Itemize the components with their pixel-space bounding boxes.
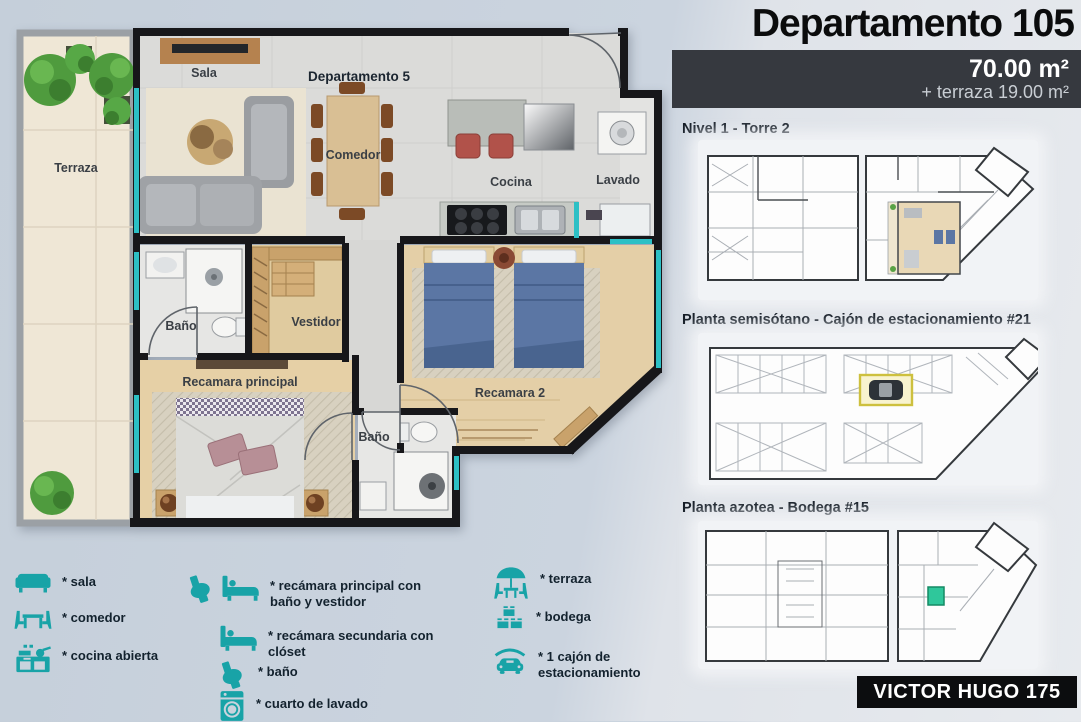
floorplan-svg: Terraza Sala Departamento 5 Comedor Coci… [13, 26, 663, 528]
main-floorplan: Terraza Sala Departamento 5 Comedor Coci… [13, 26, 663, 528]
legend-label: * cocina abierta [62, 642, 158, 664]
storage-icon [492, 603, 526, 635]
legend-item-recamara-principal: * recámara principal con baño y vestidor [186, 572, 446, 611]
bed-icon [218, 622, 258, 652]
right-panel: Departamento 105 70.00 m² + terraza 19.0… [672, 0, 1081, 721]
legend-item-bodega: * bodega [492, 603, 662, 635]
legend-label: * baño [258, 658, 298, 680]
sala-label: Sala [191, 66, 218, 80]
brand-badge-label: VICTOR HUGO 175 [873, 681, 1060, 704]
legend-label: * terraza [540, 565, 591, 587]
bano2-label: Baño [358, 430, 390, 444]
kitchen-icon [14, 642, 52, 676]
legend-item-comedor: * comedor [14, 604, 184, 634]
legend-label: * bodega [536, 603, 591, 625]
legend-label: * 1 cajón de estacionamiento [538, 643, 666, 682]
legend-item-terraza: * terraza [492, 565, 662, 601]
area-box: 70.00 m² + terraza 19.00 m² [672, 50, 1081, 108]
legend-item-cuarto-lavado: * cuarto de lavado [218, 690, 438, 722]
terraza-label: Terraza [54, 161, 99, 175]
recamara2-label: Recamara 2 [475, 386, 545, 400]
legend-label: * recámara principal con baño y vestidor [270, 572, 446, 611]
car-icon [492, 643, 528, 675]
legend-item-estacionamiento: * 1 cajón de estacionamiento [492, 643, 672, 682]
unit-title-label: Departamento 5 [308, 69, 411, 84]
page-title: Departamento 105 [672, 2, 1074, 46]
roof-section-label: Planta azotea - Bodega #15 [682, 500, 1077, 516]
sofa-icon [14, 568, 52, 596]
legend-item-bano: * baño [218, 658, 378, 692]
semisotano-plan [698, 333, 1038, 485]
comedor-label: Comedor [326, 148, 381, 162]
legend-label: * comedor [62, 604, 126, 626]
nivel-1-plan-svg [698, 140, 1038, 300]
brand-badge: VICTOR HUGO 175 [857, 676, 1077, 708]
bano1-label: Baño [165, 319, 197, 333]
recamara-principal-label: Recamara principal [182, 375, 297, 389]
terrace-icon [492, 565, 530, 601]
terraza-area [20, 33, 135, 523]
terrace-area: + terraza 19.00 m² [921, 82, 1069, 103]
toilet-bed-icon [186, 572, 260, 606]
cocina-label: Cocina [490, 175, 533, 189]
unit-area: 70.00 m² [969, 56, 1069, 82]
toilet-icon [218, 658, 248, 692]
legend-item-sala: * sala [14, 568, 184, 596]
basement-section-label: Planta semisótano - Cajón de estacionami… [682, 312, 1077, 328]
lavado-label: Lavado [596, 173, 640, 187]
legend-label: * cuarto de lavado [256, 690, 368, 712]
highlighted-unit [888, 202, 960, 274]
washer-icon [218, 690, 246, 722]
legend-label: * recámara secundaria con clóset [268, 622, 446, 661]
legend-item-cocina: * cocina abierta [14, 642, 204, 676]
dining-icon [14, 604, 52, 634]
vestidor-label: Vestidor [291, 315, 340, 329]
highlighted-bodega [928, 587, 944, 605]
highlighted-parking [860, 375, 912, 405]
level-section-label: Nivel 1 - Torre 2 [682, 121, 1077, 137]
legend-label: * sala [62, 568, 96, 590]
semisotano-plan-svg [698, 333, 1038, 485]
legend-item-recamara-secundaria: * recámara secundaria con clóset [218, 622, 448, 661]
azotea-plan-svg [698, 521, 1038, 669]
nivel-1-plan [698, 140, 1038, 300]
azotea-plan [698, 521, 1038, 669]
